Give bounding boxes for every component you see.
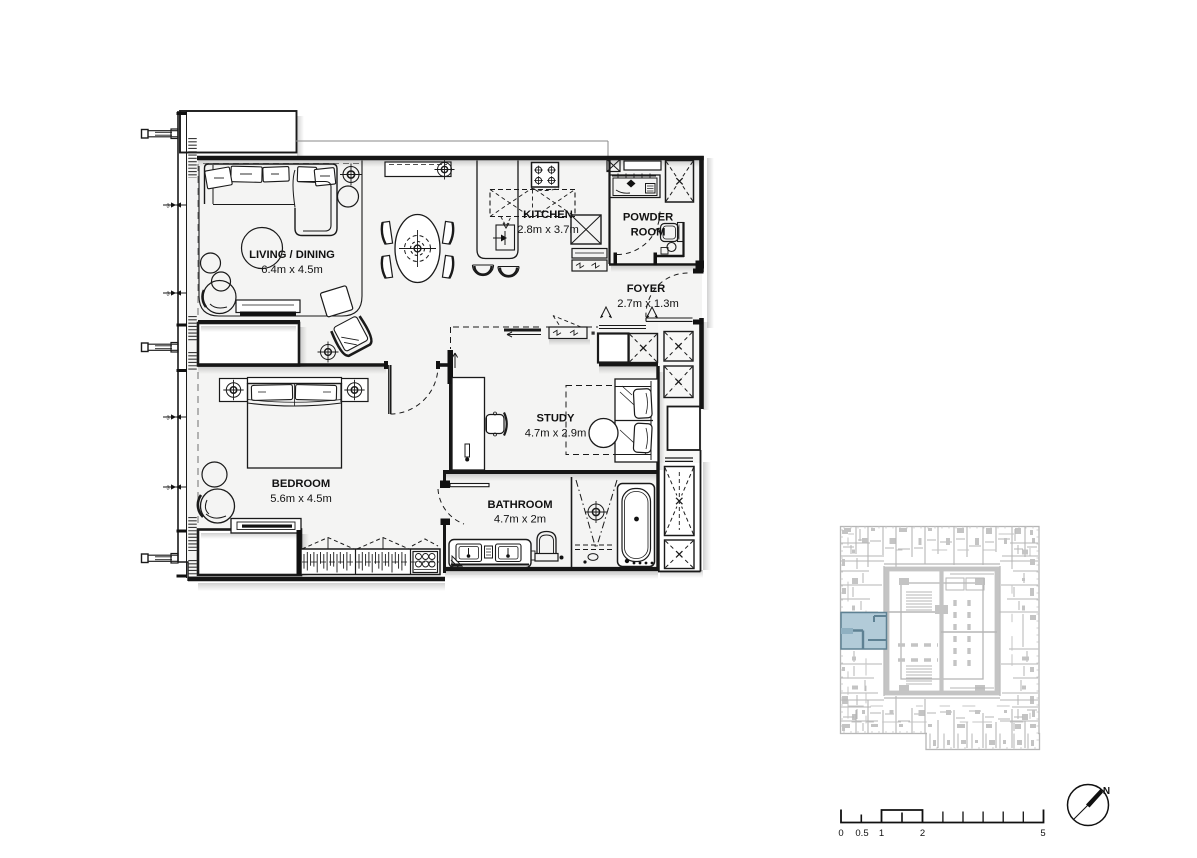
svg-text:4.7m x 2m: 4.7m x 2m — [494, 514, 546, 526]
svg-text:0: 0 — [838, 828, 843, 839]
svg-text:KITCHEN: KITCHEN — [523, 209, 573, 221]
svg-text:2.8m x 3.7m: 2.8m x 3.7m — [517, 224, 579, 236]
svg-text:POWDER: POWDER — [623, 212, 673, 224]
svg-text:FOYER: FOYER — [627, 283, 666, 295]
svg-text:N: N — [1103, 786, 1110, 797]
svg-text:6.4m x 4.5m: 6.4m x 4.5m — [261, 264, 323, 276]
svg-text:2: 2 — [920, 828, 925, 839]
svg-text:ROOM: ROOM — [631, 227, 666, 239]
svg-text:STUDY: STUDY — [537, 413, 575, 425]
svg-text:5.6m x 4.5m: 5.6m x 4.5m — [270, 493, 332, 505]
svg-text:LIVING / DINING: LIVING / DINING — [249, 249, 335, 261]
svg-text:5: 5 — [1040, 828, 1045, 839]
svg-text:3: 3 — [166, 204, 169, 210]
svg-text:1: 1 — [879, 828, 884, 839]
svg-text:4.7m x 2.9m: 4.7m x 2.9m — [525, 428, 587, 440]
svg-text:3: 3 — [166, 416, 169, 422]
svg-text:BATHROOM: BATHROOM — [487, 499, 552, 511]
svg-text:BEDROOM: BEDROOM — [272, 478, 330, 490]
svg-text:3: 3 — [166, 486, 169, 492]
svg-text:2.7m x 1.3m: 2.7m x 1.3m — [617, 298, 679, 310]
svg-text:3: 3 — [166, 292, 169, 298]
svg-text:0.5: 0.5 — [855, 828, 868, 839]
